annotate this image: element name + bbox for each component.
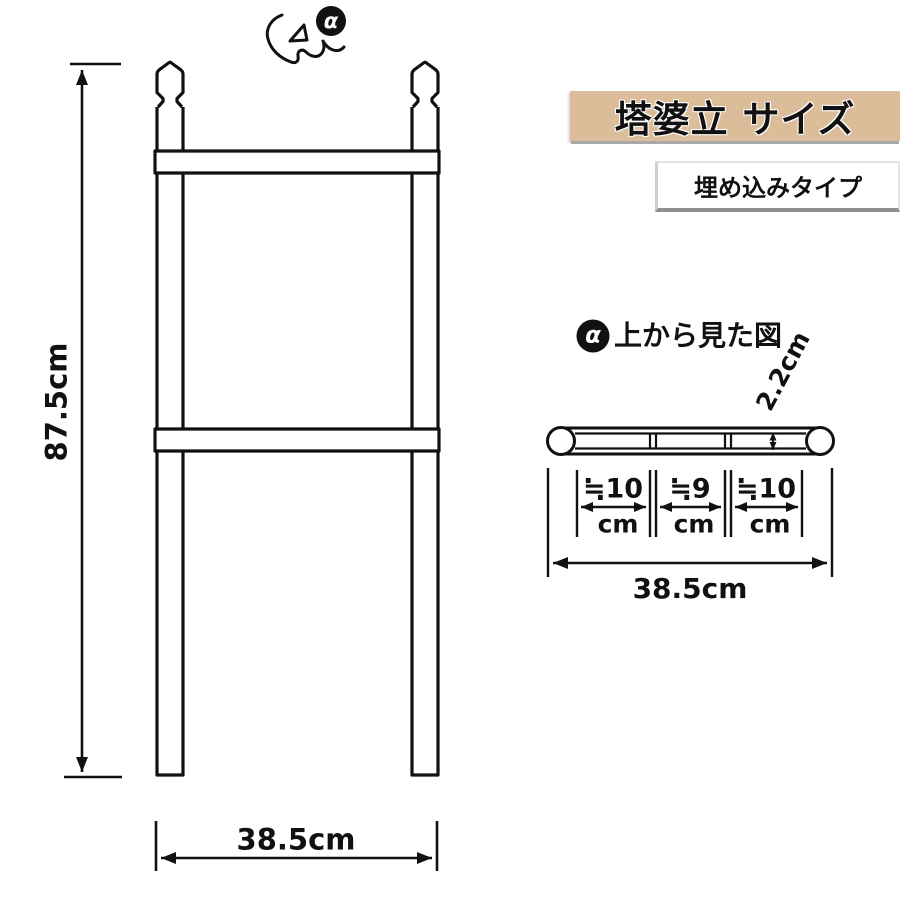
- product-size-diagram: 塔婆立 サイズ 埋め込みタイプ α α 87.5cm 38.5cm 上から見た図…: [0, 0, 900, 900]
- view-direction-alpha-badge: α: [316, 6, 346, 36]
- top-width-label: 38.5cm: [633, 575, 748, 603]
- segment-value: ≒10: [736, 476, 796, 503]
- right-post-top-view: [807, 428, 834, 455]
- eye-arrow: [290, 25, 307, 41]
- top-view-heading: 上から見た図: [614, 322, 782, 350]
- front-view-dimensions: [64, 64, 437, 871]
- segment-value: ≒9: [669, 476, 710, 503]
- segment-unit: cm: [674, 512, 715, 537]
- top-view-drawing: [548, 428, 834, 455]
- segment-unit: cm: [598, 512, 639, 537]
- front-view-drawing: [155, 62, 439, 775]
- right-post-finial: [412, 62, 438, 107]
- left-post-finial: [157, 62, 183, 107]
- segment-value: ≒10: [583, 476, 643, 503]
- type-badge-label: 埋め込みタイプ: [694, 168, 862, 203]
- front-width-label: 38.5cm: [237, 826, 356, 855]
- type-badge: 埋め込みタイプ: [655, 161, 900, 212]
- middle-crossbar: [155, 429, 439, 451]
- header-title-banner: 塔婆立 サイズ: [570, 91, 900, 141]
- top-crossbar: [155, 151, 439, 173]
- alpha-icon: α: [324, 11, 338, 32]
- alpha-icon: α: [585, 325, 601, 348]
- left-post-top-view: [548, 428, 575, 455]
- top-view-alpha-badge: α: [577, 320, 610, 353]
- page-title: 塔婆立 サイズ: [615, 89, 856, 143]
- front-height-label: 87.5cm: [43, 343, 72, 462]
- segment-unit: cm: [750, 512, 791, 537]
